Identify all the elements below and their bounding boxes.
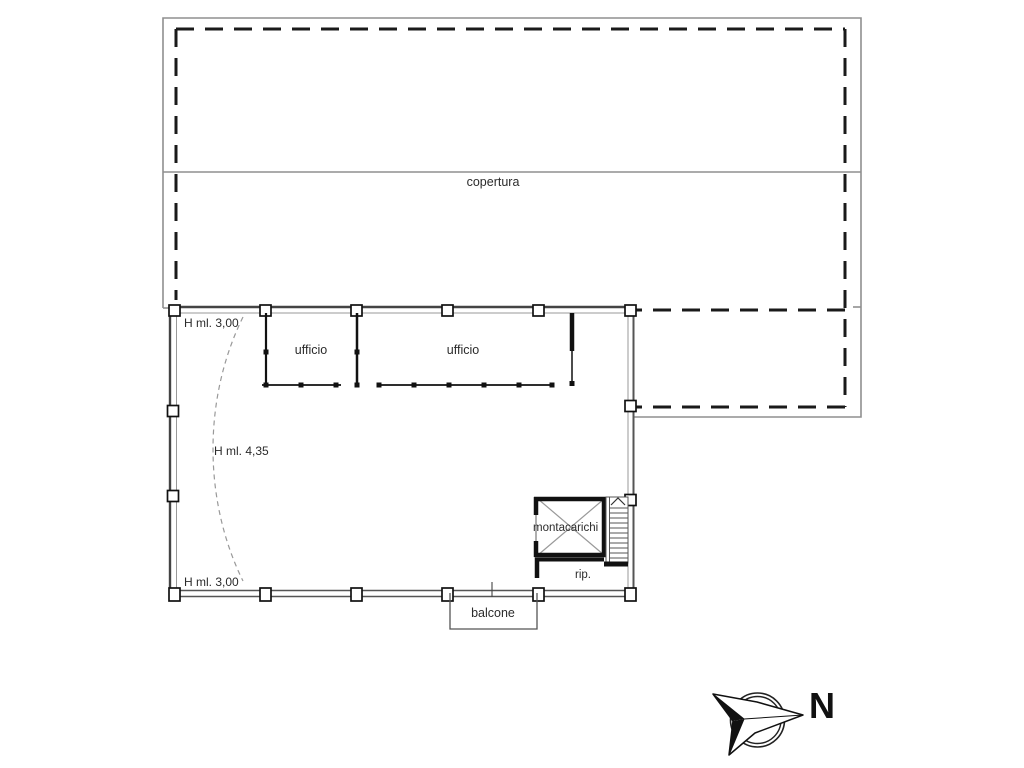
height-label-top: H ml. 3,00 (184, 316, 239, 330)
floor-plan-canvas: copertura (0, 0, 1024, 768)
stairs (606, 497, 628, 563)
room-label-montacarichi: montacarichi (533, 522, 598, 534)
north-label: N (809, 685, 835, 726)
roof-outline (163, 18, 861, 417)
room-label-rip: rip. (575, 569, 591, 581)
room-label-ufficio-2: ufficio (447, 343, 479, 357)
floor-plan-drawing: copertura (0, 0, 1024, 768)
room-label-balcone: balcone (471, 606, 515, 620)
roof-dashed-outline (176, 29, 845, 407)
height-label-bottom: H ml. 3,00 (184, 575, 239, 589)
height-label-middle: H ml. 4,35 (214, 444, 269, 458)
room-label-ufficio-1: ufficio (295, 343, 327, 357)
label-copertura: copertura (467, 175, 520, 189)
north-arrow-icon (713, 693, 803, 755)
